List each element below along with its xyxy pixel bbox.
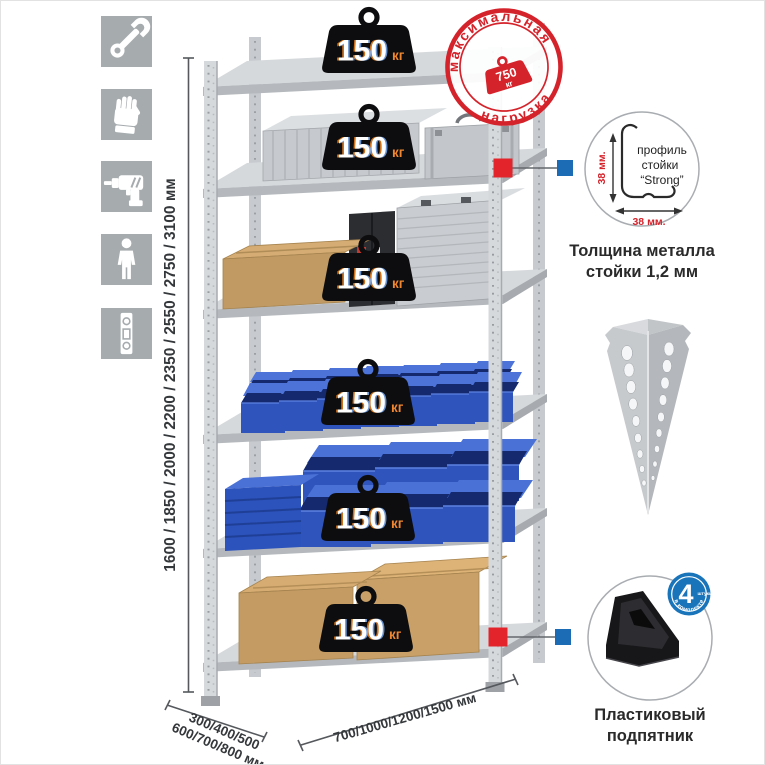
weight-unit: кг [389,627,402,642]
height-dims-label: 1600 / 1850 / 2000 / 2200 / 2350 / 2550 … [162,178,179,572]
width-dims-label: 700/1000/1200/1500 мм [332,690,478,745]
weight-value: 150 [336,387,386,420]
profile-label: “Strong” [640,173,683,187]
profile-label: профиль [637,143,687,157]
profile-detail-circle: 38 мм. 38 мм. профиль стойки “Strong” [585,112,699,228]
profile-label: стойки [642,158,679,172]
shelving-infographic: 150 150 150 кг 150 150 150 кг 150 150 15… [0,0,765,765]
profile-caption-line2: стойки 1,2 мм [557,262,727,283]
profile-dim-height-label: 38 мм. [596,151,608,184]
weight-unit: кг [392,145,405,160]
profile-caption: Толщина металла стойки 1,2 мм [557,241,727,284]
width-dimension: 700/1000/1200/1500 мм [298,674,518,751]
max-load-stamp: максимальная нагрузка 750 кг [431,1,577,141]
weight-value: 150 [337,35,387,68]
weight-value: 150 [337,132,387,165]
foot-caption-line1: Пластиковый [561,705,739,726]
profile-dim-width-label: 38 мм. [632,216,665,228]
weight-value: 150 [336,503,386,536]
foot-caption: Пластиковый подпятник [561,705,739,748]
weight-unit: кг [392,48,405,63]
red-marker [489,628,508,647]
weight-unit: кг [392,276,405,291]
height-dimension: 1600 / 1850 / 2000 / 2200 / 2350 / 2550 … [162,58,194,692]
weight-value: 150 [334,614,384,647]
red-marker [494,159,513,178]
weight-unit: кг [391,400,404,415]
angle-post-picture [605,319,691,515]
blue-marker [555,629,571,645]
shelf-load-weights: 150 150 150 кг 150 150 150 кг 150 150 15… [319,10,416,653]
depth-dimension: 300/400/500 600/700/800 мм [165,700,273,765]
scene-svg: 150 150 150 кг 150 150 150 кг 150 150 15… [1,1,765,765]
plastic-foot-circle: 4 штуки в комплекте [588,573,712,701]
profile-caption-line1: Толщина металла [557,241,727,262]
foot-caption-line2: подпятник [561,726,739,747]
badge-unit: штуки [698,592,713,597]
weight-unit: кг [391,516,404,531]
load-weight-badge: 150 150 150 кг [322,10,416,74]
blue-marker [557,160,573,176]
weight-value: 150 [337,263,387,296]
